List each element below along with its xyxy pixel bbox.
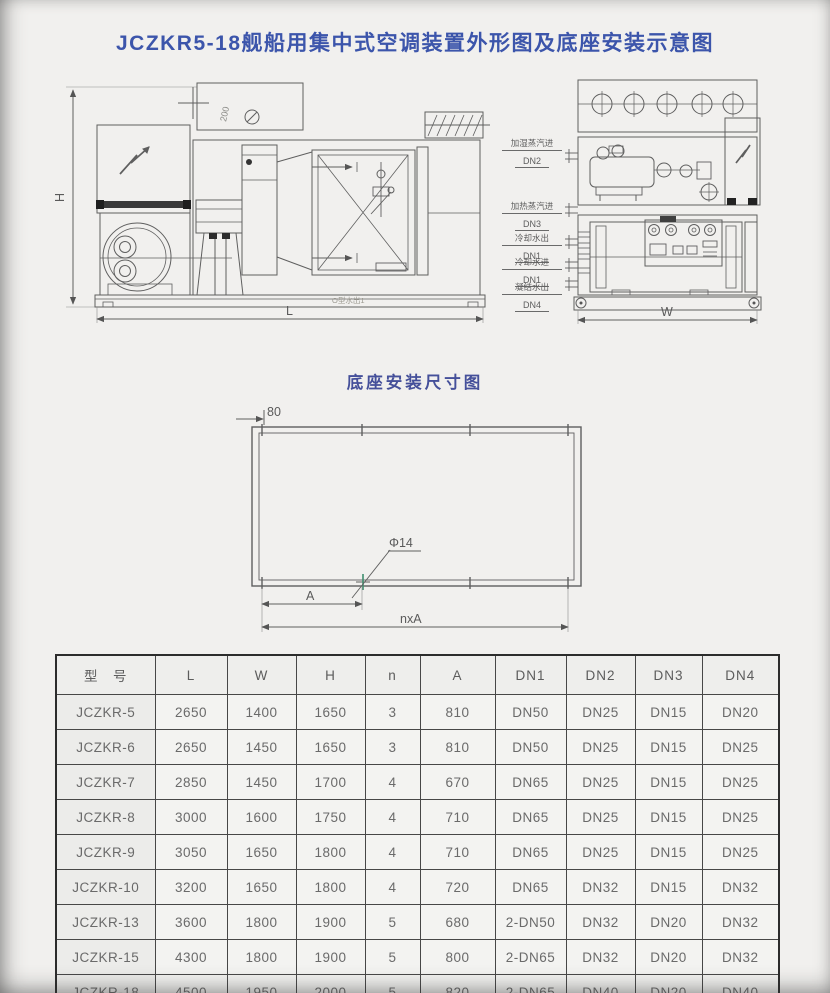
base-note: O型水出1 <box>332 295 365 305</box>
offset-dimension: 80 <box>236 405 281 425</box>
spec-cell: 3600 <box>155 905 227 940</box>
table-row: JCZKR-1845001950200058202-DN65DN40DN20DN… <box>56 975 779 993</box>
page-title: JCZKR5-18舰船用集中式空调装置外形图及底座安装示意图 <box>0 27 830 57</box>
header-row: 型 号 L W H n A DN1 DN2 DN3 DN4 <box>56 655 779 695</box>
spec-cell: DN20 <box>702 695 779 730</box>
header-dn2: DN2 <box>566 655 635 695</box>
spec-cell: DN25 <box>566 695 635 730</box>
spec-cell: DN32 <box>566 870 635 905</box>
table-row: JCZKR-1336001800190056802-DN50DN32DN20DN… <box>56 905 779 940</box>
spec-cell: 3000 <box>155 800 227 835</box>
spec-cell: 1800 <box>296 835 365 870</box>
hole-callout: Φ14 <box>352 536 421 598</box>
spec-cell: 1800 <box>227 940 296 975</box>
header-dn1: DN1 <box>495 655 566 695</box>
spec-table: 型 号 L W H n A DN1 DN2 DN3 DN4 JCZKR-5265… <box>55 654 780 993</box>
spec-cell: DN32 <box>702 940 779 975</box>
spec-cell: 1800 <box>296 870 365 905</box>
spec-cell: 1650 <box>296 695 365 730</box>
spec-cell: DN15 <box>635 870 702 905</box>
spec-cell: DN15 <box>635 800 702 835</box>
outline-drawing: H 200 <box>0 62 830 342</box>
spec-cell: 5 <box>365 905 420 940</box>
electric-box <box>97 125 190 213</box>
spec-cell: 4 <box>365 800 420 835</box>
end-panel-strip <box>417 147 428 275</box>
model-cell: JCZKR-5 <box>56 695 155 730</box>
table-row: JCZKR-62650145016503810DN50DN25DN15DN25 <box>56 730 779 765</box>
discharge-duct <box>242 145 312 275</box>
spec-cell: 1950 <box>227 975 296 993</box>
spec-cell: 1900 <box>296 940 365 975</box>
spec-cell: 1900 <box>296 905 365 940</box>
spec-table-body: JCZKR-52650140016503810DN50DN25DN15DN20J… <box>56 695 779 993</box>
spec-cell: 670 <box>420 765 495 800</box>
dim-l-label: L <box>286 304 293 318</box>
spec-cell: 4300 <box>155 940 227 975</box>
model-cell: JCZKR-15 <box>56 940 155 975</box>
dim-a-label: A <box>306 589 315 603</box>
circle-slash-icon <box>245 110 259 124</box>
spec-cell: 810 <box>420 695 495 730</box>
header-l: L <box>155 655 227 695</box>
model-cell: JCZKR-18 <box>56 975 155 993</box>
spec-cell: DN25 <box>566 730 635 765</box>
spec-table-section: 型 号 L W H n A DN1 DN2 DN3 DN4 JCZKR-5265… <box>55 654 780 993</box>
dim-nxa-label: nxA <box>400 612 422 626</box>
table-row: JCZKR-1543001800190058002-DN65DN32DN20DN… <box>56 940 779 975</box>
end-electric-panel <box>725 118 760 205</box>
compressor-compartment <box>100 213 232 295</box>
hole-pitch-dimension: A <box>262 586 362 632</box>
header-h: H <box>296 655 365 695</box>
spec-cell: 1650 <box>227 835 296 870</box>
base-plan-drawing: 80 Φ14 A nxA <box>0 398 830 643</box>
table-row: JCZKR-93050165018004710DN65DN25DN15DN25 <box>56 835 779 870</box>
spec-cell: DN65 <box>495 870 566 905</box>
model-cell: JCZKR-13 <box>56 905 155 940</box>
spec-cell: 820 <box>420 975 495 993</box>
spec-cell: DN20 <box>635 975 702 993</box>
end-view: W <box>565 80 761 324</box>
spec-cell: DN15 <box>635 695 702 730</box>
header-dn3: DN3 <box>635 655 702 695</box>
lower-compartment <box>578 215 757 295</box>
header-model: 型 号 <box>56 655 155 695</box>
port-name: 凝结水出 <box>502 281 562 295</box>
spec-cell: 1450 <box>227 765 296 800</box>
spec-cell: 2-DN65 <box>495 975 566 993</box>
port-name: 加湿蒸汽进 <box>502 137 562 151</box>
spec-cell: 4500 <box>155 975 227 993</box>
spec-cell: 1650 <box>227 870 296 905</box>
spec-cell: 3 <box>365 695 420 730</box>
table-row: JCZKR-83000160017504710DN65DN25DN15DN25 <box>56 800 779 835</box>
spec-cell: 2-DN65 <box>495 940 566 975</box>
base-diagram-title: 底座安装尺寸图 <box>0 369 830 393</box>
spec-cell: DN15 <box>635 765 702 800</box>
spec-cell: 710 <box>420 835 495 870</box>
model-cell: JCZKR-7 <box>56 765 155 800</box>
model-cell: JCZKR-8 <box>56 800 155 835</box>
spec-cell: 1600 <box>227 800 296 835</box>
side-view: H 200 <box>53 83 490 323</box>
catalog-page: JCZKR5-18舰船用集中式空调装置外形图及底座安装示意图 H 200 <box>0 0 830 993</box>
port-name: 加热蒸汽进 <box>502 200 562 214</box>
port-label: 凝结水出 DN4 <box>502 281 562 313</box>
port-name: 冷却水出 <box>502 232 562 246</box>
spec-cell: DN65 <box>495 800 566 835</box>
spec-cell: DN32 <box>702 870 779 905</box>
spec-cell: DN50 <box>495 730 566 765</box>
spec-cell: 680 <box>420 905 495 940</box>
port-dn: DN3 <box>515 219 549 231</box>
table-row: JCZKR-52650140016503810DN50DN25DN15DN20 <box>56 695 779 730</box>
main-casing <box>193 140 480 295</box>
spec-cell: 2650 <box>155 695 227 730</box>
model-cell: JCZKR-6 <box>56 730 155 765</box>
spec-cell: DN25 <box>702 730 779 765</box>
spec-cell: DN25 <box>702 765 779 800</box>
spec-cell: 2650 <box>155 730 227 765</box>
spec-cell: DN20 <box>635 940 702 975</box>
base-frame: 80 Φ14 A nxA <box>236 405 581 632</box>
port-label: 加热蒸汽进 DN3 <box>502 200 562 232</box>
model-cell: JCZKR-9 <box>56 835 155 870</box>
spec-cell: 1400 <box>227 695 296 730</box>
table-row: JCZKR-72850145017004670DN65DN25DN15DN25 <box>56 765 779 800</box>
model-cell: JCZKR-10 <box>56 870 155 905</box>
spec-cell: DN50 <box>495 695 566 730</box>
width-dimension: W <box>578 305 757 324</box>
intake-grille <box>425 112 490 138</box>
spec-cell: DN32 <box>566 940 635 975</box>
divider-strip <box>96 200 191 209</box>
fan-openings <box>578 80 757 132</box>
spec-cell: DN25 <box>702 800 779 835</box>
spec-cell: DN25 <box>702 835 779 870</box>
dim-w-label: W <box>661 305 673 319</box>
spec-cell: 1800 <box>227 905 296 940</box>
table-row: JCZKR-103200165018004720DN65DN32DN15DN32 <box>56 870 779 905</box>
spec-cell: 4 <box>365 870 420 905</box>
coil-door <box>312 150 415 275</box>
spec-cell: DN32 <box>702 905 779 940</box>
dim-80-label: 80 <box>267 405 281 419</box>
control-panel <box>645 216 722 266</box>
spec-cell: 4 <box>365 765 420 800</box>
spec-cell: DN32 <box>566 905 635 940</box>
bolt-marks <box>262 424 568 589</box>
spec-cell: DN25 <box>566 835 635 870</box>
dim-h-label: H <box>53 193 67 202</box>
spec-cell: DN25 <box>566 800 635 835</box>
spec-cell: DN15 <box>635 835 702 870</box>
spec-cell: 3 <box>365 730 420 765</box>
hole-dia-label: Φ14 <box>389 536 413 550</box>
spec-cell: 2850 <box>155 765 227 800</box>
header-w: W <box>227 655 296 695</box>
top-plenum: 200 <box>178 83 303 130</box>
spec-cell: 5 <box>365 975 420 993</box>
plenum-note: 200 <box>218 106 231 123</box>
spec-cell: 1700 <box>296 765 365 800</box>
spec-cell: 710 <box>420 800 495 835</box>
spec-cell: 2-DN50 <box>495 905 566 940</box>
port-dn: DN2 <box>515 156 549 168</box>
spec-cell: DN20 <box>635 905 702 940</box>
header-dn4: DN4 <box>702 655 779 695</box>
spec-cell: 1650 <box>296 730 365 765</box>
spec-cell: 1450 <box>227 730 296 765</box>
port-name: 冷却水进 <box>502 256 562 270</box>
spec-cell: DN15 <box>635 730 702 765</box>
pipe-stubs <box>565 149 578 291</box>
spec-cell: DN65 <box>495 765 566 800</box>
fan-assembly <box>196 200 243 295</box>
spec-cell: 1750 <box>296 800 365 835</box>
upper-compartment <box>578 137 757 205</box>
port-dn: DN4 <box>515 300 549 312</box>
header-n: n <box>365 655 420 695</box>
spec-cell: 720 <box>420 870 495 905</box>
spec-cell: 3050 <box>155 835 227 870</box>
spec-cell: 5 <box>365 940 420 975</box>
spec-cell: 4 <box>365 835 420 870</box>
spec-cell: 800 <box>420 940 495 975</box>
spec-cell: 3200 <box>155 870 227 905</box>
port-label: 加湿蒸汽进 DN2 <box>502 137 562 169</box>
height-dimension: H <box>53 87 197 307</box>
spec-cell: DN25 <box>566 765 635 800</box>
spec-cell: DN65 <box>495 835 566 870</box>
spec-cell: 2000 <box>296 975 365 993</box>
spec-cell: DN40 <box>566 975 635 993</box>
spec-cell: 810 <box>420 730 495 765</box>
header-a: A <box>420 655 495 695</box>
end-side-panel <box>745 222 757 292</box>
spec-cell: DN40 <box>702 975 779 993</box>
